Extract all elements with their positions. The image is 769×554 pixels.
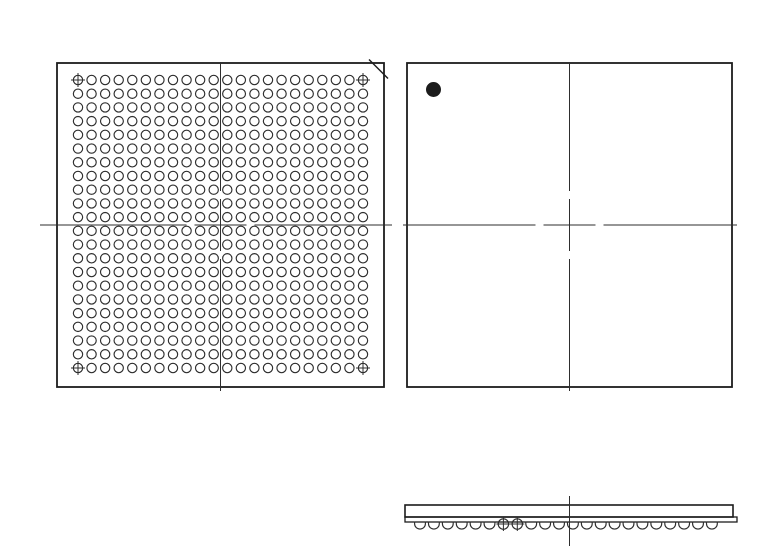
solder-ball bbox=[250, 267, 259, 276]
solder-ball bbox=[73, 158, 82, 167]
solder-ball bbox=[73, 116, 82, 125]
solder-ball bbox=[223, 171, 232, 180]
solder-ball bbox=[236, 130, 245, 139]
solder-ball bbox=[318, 308, 327, 317]
solder-ball bbox=[182, 130, 191, 139]
solder-ball bbox=[277, 185, 286, 194]
solder-ball bbox=[100, 254, 109, 263]
solder-ball bbox=[331, 89, 340, 98]
solder-ball bbox=[155, 185, 164, 194]
solder-ball bbox=[155, 336, 164, 345]
solder-ball bbox=[236, 281, 245, 290]
solder-ball bbox=[195, 350, 204, 359]
solder-ball bbox=[304, 75, 313, 84]
solder-ball bbox=[331, 199, 340, 208]
solder-ball bbox=[345, 89, 354, 98]
solder-ball bbox=[128, 103, 137, 112]
solder-ball bbox=[358, 240, 367, 249]
solder-ball bbox=[100, 322, 109, 331]
solder-ball bbox=[87, 254, 96, 263]
solder-ball bbox=[304, 103, 313, 112]
solder-ball bbox=[209, 89, 218, 98]
solder-ball bbox=[100, 89, 109, 98]
solder-ball bbox=[100, 116, 109, 125]
solder-ball bbox=[223, 212, 232, 221]
solder-ball bbox=[318, 254, 327, 263]
solder-ball bbox=[277, 295, 286, 304]
solder-ball bbox=[263, 281, 272, 290]
solder-ball bbox=[141, 350, 150, 359]
solder-ball bbox=[73, 212, 82, 221]
solder-ball bbox=[263, 103, 272, 112]
solder-ball bbox=[195, 226, 204, 235]
solder-ball bbox=[100, 158, 109, 167]
solder-ball bbox=[141, 363, 150, 372]
solder-ball bbox=[318, 116, 327, 125]
solder-ball bbox=[358, 212, 367, 221]
solder-ball bbox=[155, 116, 164, 125]
solder-ball bbox=[73, 171, 82, 180]
solder-ball bbox=[250, 144, 259, 153]
solder-ball bbox=[155, 212, 164, 221]
solder-ball bbox=[223, 295, 232, 304]
solder-ball bbox=[195, 130, 204, 139]
solder-ball bbox=[277, 75, 286, 84]
solder-ball bbox=[141, 336, 150, 345]
solder-ball bbox=[182, 199, 191, 208]
solder-ball bbox=[141, 75, 150, 84]
solder-ball bbox=[290, 199, 299, 208]
solder-ball bbox=[128, 322, 137, 331]
solder-ball bbox=[100, 295, 109, 304]
solder-ball bbox=[277, 116, 286, 125]
solder-ball bbox=[345, 363, 354, 372]
solder-ball bbox=[168, 212, 177, 221]
solder-ball bbox=[128, 144, 137, 153]
solder-ball bbox=[250, 308, 259, 317]
solder-ball bbox=[73, 322, 82, 331]
solder-ball bbox=[358, 254, 367, 263]
solder-ball bbox=[155, 89, 164, 98]
solder-ball bbox=[209, 322, 218, 331]
solder-ball bbox=[168, 103, 177, 112]
solder-ball bbox=[304, 363, 313, 372]
solder-ball bbox=[182, 267, 191, 276]
solder-ball bbox=[182, 350, 191, 359]
solder-ball bbox=[263, 254, 272, 263]
solder-ball bbox=[290, 254, 299, 263]
solder-ball bbox=[345, 171, 354, 180]
solder-ball bbox=[168, 363, 177, 372]
solder-ball bbox=[87, 89, 96, 98]
solder-ball bbox=[182, 226, 191, 235]
solder-ball bbox=[345, 295, 354, 304]
solder-ball bbox=[277, 254, 286, 263]
solder-ball bbox=[236, 144, 245, 153]
solder-ball bbox=[73, 185, 82, 194]
solder-ball bbox=[168, 281, 177, 290]
solder-ball bbox=[236, 336, 245, 345]
solder-ball bbox=[345, 103, 354, 112]
solder-ball bbox=[345, 254, 354, 263]
solder-ball bbox=[277, 144, 286, 153]
solder-ball bbox=[155, 130, 164, 139]
solder-ball bbox=[155, 103, 164, 112]
solder-ball bbox=[318, 158, 327, 167]
solder-ball bbox=[87, 171, 96, 180]
solder-ball bbox=[223, 158, 232, 167]
solder-ball bbox=[250, 185, 259, 194]
solder-ball bbox=[209, 185, 218, 194]
solder-ball bbox=[141, 308, 150, 317]
solder-ball bbox=[114, 130, 123, 139]
solder-ball bbox=[236, 89, 245, 98]
package-drawing-canvas bbox=[0, 0, 769, 554]
solder-ball bbox=[128, 281, 137, 290]
solder-ball bbox=[290, 281, 299, 290]
solder-ball bbox=[182, 308, 191, 317]
solder-ball bbox=[209, 199, 218, 208]
solder-ball bbox=[318, 212, 327, 221]
solder-ball bbox=[182, 116, 191, 125]
solder-ball bbox=[128, 240, 137, 249]
solder-ball bbox=[358, 267, 367, 276]
solder-ball bbox=[345, 130, 354, 139]
solder-ball bbox=[100, 226, 109, 235]
solder-ball bbox=[250, 240, 259, 249]
solder-ball bbox=[223, 254, 232, 263]
solder-ball bbox=[128, 295, 137, 304]
solder-ball bbox=[168, 322, 177, 331]
solder-ball bbox=[263, 75, 272, 84]
solder-ball bbox=[304, 116, 313, 125]
solder-ball bbox=[318, 281, 327, 290]
solder-ball bbox=[290, 212, 299, 221]
solder-ball bbox=[87, 226, 96, 235]
solder-ball bbox=[250, 254, 259, 263]
solder-ball bbox=[345, 185, 354, 194]
solder-ball bbox=[277, 267, 286, 276]
solder-ball bbox=[331, 336, 340, 345]
solder-ball bbox=[290, 89, 299, 98]
solder-ball bbox=[73, 89, 82, 98]
solder-ball bbox=[100, 185, 109, 194]
solder-ball bbox=[250, 295, 259, 304]
solder-ball bbox=[168, 226, 177, 235]
solder-ball bbox=[263, 322, 272, 331]
solder-ball bbox=[277, 308, 286, 317]
solder-ball bbox=[209, 130, 218, 139]
solder-ball bbox=[195, 295, 204, 304]
solder-ball bbox=[114, 199, 123, 208]
solder-ball bbox=[155, 144, 164, 153]
solder-ball bbox=[358, 89, 367, 98]
solder-ball bbox=[128, 158, 137, 167]
solder-ball bbox=[209, 212, 218, 221]
solder-ball bbox=[223, 103, 232, 112]
solder-ball bbox=[345, 226, 354, 235]
solder-ball bbox=[358, 281, 367, 290]
solder-ball bbox=[182, 171, 191, 180]
solder-ball bbox=[263, 350, 272, 359]
solder-ball bbox=[141, 281, 150, 290]
solder-ball bbox=[290, 240, 299, 249]
solder-ball bbox=[141, 144, 150, 153]
solder-ball bbox=[100, 350, 109, 359]
solder-ball bbox=[304, 144, 313, 153]
package-drawing bbox=[0, 0, 769, 554]
solder-ball bbox=[263, 158, 272, 167]
solder-ball bbox=[345, 336, 354, 345]
solder-ball bbox=[114, 281, 123, 290]
solder-ball bbox=[209, 240, 218, 249]
solder-ball bbox=[168, 89, 177, 98]
solder-ball bbox=[155, 199, 164, 208]
solder-ball bbox=[182, 254, 191, 263]
solder-ball bbox=[87, 281, 96, 290]
solder-ball bbox=[195, 185, 204, 194]
solder-ball bbox=[250, 158, 259, 167]
solder-ball bbox=[87, 130, 96, 139]
solder-ball bbox=[155, 226, 164, 235]
solder-ball bbox=[168, 158, 177, 167]
solder-ball bbox=[263, 116, 272, 125]
solder-ball bbox=[168, 185, 177, 194]
solder-ball bbox=[290, 103, 299, 112]
solder-ball bbox=[128, 363, 137, 372]
solder-ball bbox=[168, 171, 177, 180]
solder-ball bbox=[168, 308, 177, 317]
solder-ball bbox=[358, 350, 367, 359]
solder-ball bbox=[263, 171, 272, 180]
solder-ball bbox=[304, 171, 313, 180]
solder-ball bbox=[304, 281, 313, 290]
solder-ball bbox=[345, 116, 354, 125]
solder-ball bbox=[290, 226, 299, 235]
solder-ball bbox=[73, 199, 82, 208]
solder-ball bbox=[250, 322, 259, 331]
solder-ball bbox=[358, 336, 367, 345]
solder-ball bbox=[128, 267, 137, 276]
solder-ball bbox=[277, 336, 286, 345]
solder-ball bbox=[304, 226, 313, 235]
solder-ball bbox=[345, 212, 354, 221]
solder-ball bbox=[114, 116, 123, 125]
solder-ball bbox=[331, 116, 340, 125]
solder-ball bbox=[114, 171, 123, 180]
solder-ball bbox=[331, 158, 340, 167]
solder-ball bbox=[223, 144, 232, 153]
solder-ball bbox=[141, 103, 150, 112]
solder-ball bbox=[358, 144, 367, 153]
solder-ball bbox=[304, 158, 313, 167]
solder-ball bbox=[155, 363, 164, 372]
solder-ball bbox=[155, 281, 164, 290]
solder-ball bbox=[358, 308, 367, 317]
solder-ball bbox=[345, 322, 354, 331]
solder-ball bbox=[100, 336, 109, 345]
solder-ball bbox=[345, 350, 354, 359]
solder-ball bbox=[100, 308, 109, 317]
solder-ball bbox=[141, 171, 150, 180]
solder-ball bbox=[250, 89, 259, 98]
solder-ball bbox=[114, 322, 123, 331]
solder-ball bbox=[331, 144, 340, 153]
solder-ball bbox=[168, 254, 177, 263]
solder-ball bbox=[114, 363, 123, 372]
solder-ball bbox=[141, 158, 150, 167]
solder-ball bbox=[318, 103, 327, 112]
solder-ball bbox=[345, 199, 354, 208]
solder-ball bbox=[114, 350, 123, 359]
solder-ball bbox=[100, 267, 109, 276]
solder-ball bbox=[263, 130, 272, 139]
solder-ball bbox=[182, 103, 191, 112]
solder-ball bbox=[100, 199, 109, 208]
solder-ball bbox=[318, 322, 327, 331]
solder-ball bbox=[114, 158, 123, 167]
solder-ball bbox=[155, 350, 164, 359]
solder-ball bbox=[304, 267, 313, 276]
solder-ball bbox=[304, 350, 313, 359]
solder-ball bbox=[223, 116, 232, 125]
solder-ball bbox=[358, 199, 367, 208]
solder-ball bbox=[331, 185, 340, 194]
solder-ball bbox=[318, 363, 327, 372]
solder-ball bbox=[155, 171, 164, 180]
solder-ball bbox=[304, 130, 313, 139]
solder-ball bbox=[263, 185, 272, 194]
solder-ball bbox=[195, 281, 204, 290]
solder-ball bbox=[318, 336, 327, 345]
solder-ball bbox=[73, 308, 82, 317]
solder-ball bbox=[87, 212, 96, 221]
solder-ball bbox=[358, 103, 367, 112]
solder-ball bbox=[209, 144, 218, 153]
solder-ball bbox=[331, 226, 340, 235]
solder-ball bbox=[263, 89, 272, 98]
solder-ball bbox=[331, 281, 340, 290]
solder-ball bbox=[263, 308, 272, 317]
solder-ball bbox=[128, 212, 137, 221]
solder-ball bbox=[195, 199, 204, 208]
solder-ball bbox=[263, 226, 272, 235]
solder-ball bbox=[263, 267, 272, 276]
solder-ball bbox=[128, 199, 137, 208]
solder-ball bbox=[277, 130, 286, 139]
solder-ball bbox=[73, 144, 82, 153]
solder-ball bbox=[250, 226, 259, 235]
solder-ball bbox=[168, 295, 177, 304]
solder-ball bbox=[345, 144, 354, 153]
solder-ball bbox=[141, 254, 150, 263]
solder-ball bbox=[223, 350, 232, 359]
solder-ball bbox=[114, 295, 123, 304]
solder-ball bbox=[114, 89, 123, 98]
solder-ball bbox=[87, 363, 96, 372]
solder-ball bbox=[114, 336, 123, 345]
solder-ball bbox=[318, 144, 327, 153]
solder-ball bbox=[263, 295, 272, 304]
solder-ball bbox=[223, 185, 232, 194]
solder-ball bbox=[141, 267, 150, 276]
solder-ball bbox=[128, 116, 137, 125]
top-view bbox=[403, 63, 737, 391]
solder-ball bbox=[73, 350, 82, 359]
solder-ball bbox=[290, 322, 299, 331]
solder-ball bbox=[304, 240, 313, 249]
solder-ball bbox=[223, 199, 232, 208]
solder-ball bbox=[318, 240, 327, 249]
pin1-indicator-dot bbox=[426, 82, 441, 97]
solder-ball bbox=[141, 185, 150, 194]
solder-ball bbox=[114, 240, 123, 249]
solder-ball bbox=[182, 158, 191, 167]
solder-ball bbox=[331, 212, 340, 221]
solder-ball bbox=[345, 75, 354, 84]
solder-ball bbox=[345, 240, 354, 249]
solder-ball bbox=[114, 103, 123, 112]
solder-ball bbox=[223, 281, 232, 290]
solder-ball bbox=[128, 75, 137, 84]
solder-ball bbox=[236, 103, 245, 112]
solder-ball bbox=[182, 144, 191, 153]
solder-ball bbox=[250, 212, 259, 221]
solder-ball bbox=[290, 144, 299, 153]
solder-ball bbox=[114, 308, 123, 317]
solder-ball bbox=[290, 350, 299, 359]
solder-ball bbox=[318, 199, 327, 208]
solder-ball bbox=[114, 144, 123, 153]
solder-ball bbox=[277, 240, 286, 249]
solder-ball bbox=[209, 226, 218, 235]
solder-ball bbox=[358, 130, 367, 139]
solder-ball bbox=[141, 295, 150, 304]
solder-ball bbox=[250, 199, 259, 208]
solder-ball bbox=[87, 336, 96, 345]
solder-ball bbox=[318, 350, 327, 359]
solder-ball bbox=[318, 130, 327, 139]
solder-ball bbox=[87, 308, 96, 317]
solder-ball bbox=[331, 75, 340, 84]
solder-ball bbox=[236, 212, 245, 221]
solder-ball bbox=[155, 322, 164, 331]
solder-ball bbox=[195, 322, 204, 331]
solder-ball bbox=[182, 322, 191, 331]
solder-ball bbox=[100, 144, 109, 153]
solder-ball bbox=[195, 171, 204, 180]
solder-ball bbox=[114, 185, 123, 194]
solder-ball bbox=[263, 144, 272, 153]
solder-ball bbox=[223, 226, 232, 235]
solder-ball bbox=[73, 226, 82, 235]
solder-ball bbox=[209, 350, 218, 359]
solder-ball bbox=[290, 116, 299, 125]
solder-ball bbox=[87, 240, 96, 249]
solder-ball bbox=[331, 171, 340, 180]
solder-ball bbox=[318, 185, 327, 194]
solder-ball bbox=[263, 336, 272, 345]
solder-ball bbox=[73, 295, 82, 304]
solder-ball bbox=[236, 308, 245, 317]
solder-ball bbox=[304, 336, 313, 345]
solder-ball bbox=[128, 336, 137, 345]
solder-ball bbox=[263, 212, 272, 221]
solder-ball bbox=[331, 295, 340, 304]
solder-ball bbox=[128, 185, 137, 194]
solder-ball bbox=[290, 267, 299, 276]
solder-ball bbox=[100, 240, 109, 249]
